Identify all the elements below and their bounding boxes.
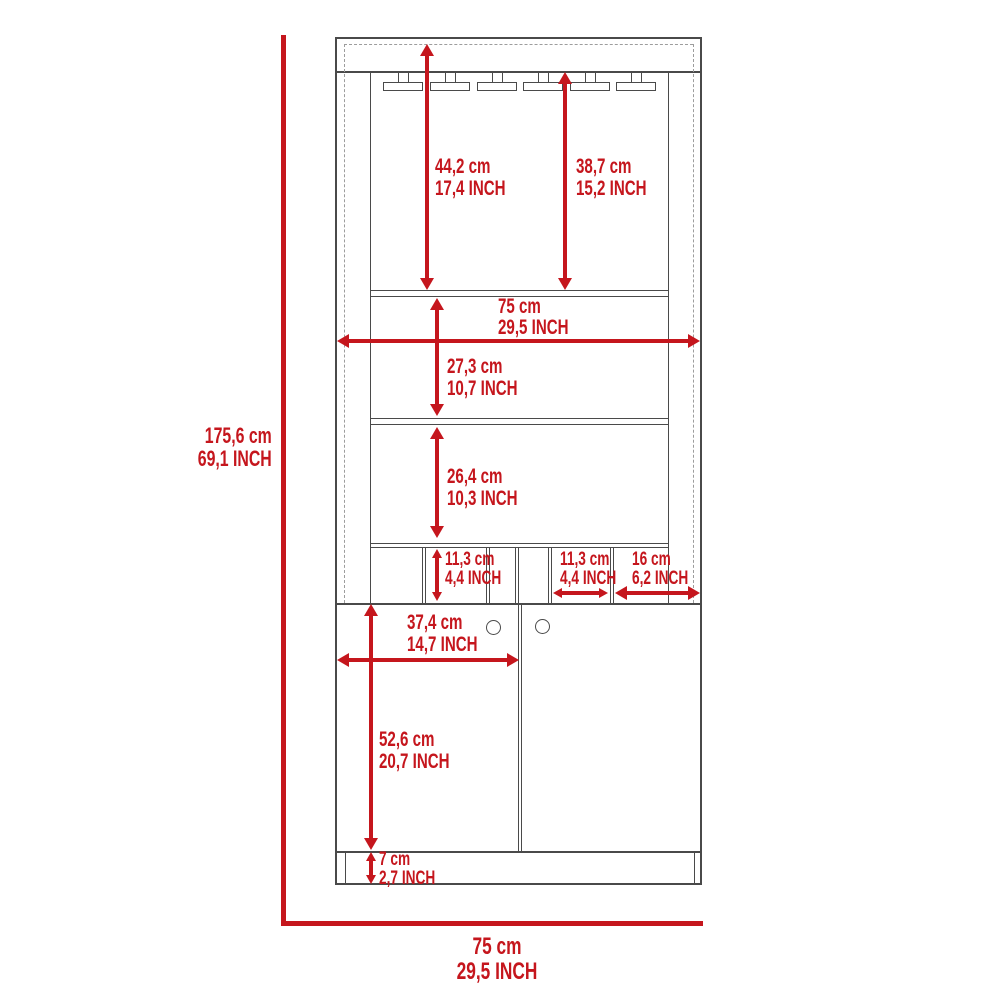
dim-label-overall-height: 175,6 cm 69,1 INCH [169, 424, 272, 470]
arrow-cubby-width [562, 591, 599, 595]
cubby-divider [425, 547, 426, 603]
shelf-line [370, 547, 668, 548]
dim-cm: 38,7 cm [576, 156, 647, 178]
rack-support [631, 71, 632, 82]
rack-support [408, 71, 409, 82]
cubby-divider [551, 547, 552, 603]
rack-support [445, 71, 446, 82]
dim-inch: 29,5 INCH [413, 959, 581, 984]
dashed-inset-right [693, 44, 694, 603]
dim-inch: 69,1 INCH [198, 447, 272, 470]
arrow-top-section-with-panel [425, 56, 429, 278]
arrow-cubby-height [435, 558, 439, 592]
arrow-middle-section [435, 310, 439, 404]
dashed-inset-left [344, 44, 345, 603]
cubby-divider [422, 547, 423, 603]
dim-cm: 7 cm [379, 850, 435, 869]
dim-label-cubby-height: 11,3 cm 4,4 INCH [445, 550, 523, 588]
shelf-line [370, 424, 668, 425]
arrow-interior-width [349, 339, 688, 343]
stemware-rack-bar [430, 82, 470, 91]
stemware-rack-bar [570, 82, 610, 91]
dim-inch: 29,5 INCH [498, 317, 569, 338]
dim-label-interior-width: 75 cm 29,5 INCH [498, 296, 596, 338]
stemware-rack-bar [523, 82, 563, 91]
dim-cm: 11,3 cm [445, 550, 501, 569]
dim-inch: 4,4 INCH [445, 569, 501, 588]
shelf-line [370, 418, 668, 419]
rack-support [455, 71, 456, 82]
base-inset-line [345, 851, 346, 884]
dim-inch: 4,4 INCH [560, 569, 616, 588]
door-divider [518, 603, 519, 851]
dim-label-door-height: 52,6 cm 20,7 INCH [379, 729, 477, 773]
rack-support [398, 71, 399, 82]
stemware-rack-bar [477, 82, 517, 91]
dim-label-middle-section: 27,3 cm 10,7 INCH [447, 356, 545, 400]
arrow-base-height [369, 861, 373, 875]
dim-cm: 52,6 cm [379, 729, 450, 751]
dim-cm: 44,2 cm [435, 156, 506, 178]
rack-support [595, 71, 596, 82]
overall-width-line [281, 921, 703, 926]
dim-inch: 10,3 INCH [447, 488, 518, 510]
dim-inch: 2,7 INCH [379, 869, 435, 888]
rack-support [641, 71, 642, 82]
rack-support [585, 71, 586, 82]
arrow-door-height [369, 616, 373, 838]
shelf-line [370, 543, 668, 544]
shelf-line [370, 290, 668, 291]
dim-cm: 27,3 cm [447, 356, 518, 378]
dim-cm: 175,6 cm [198, 424, 272, 447]
dimension-diagram: 44,2 cm 17,4 INCH 38,7 cm 15,2 INCH 75 c… [0, 0, 1000, 1000]
rack-support [502, 71, 503, 82]
dim-cm: 16 cm [632, 550, 688, 569]
top-panel-line [335, 71, 702, 73]
dim-label-open-shelf: 26,4 cm 10,3 INCH [447, 466, 545, 510]
rack-support [548, 71, 549, 82]
dim-inch: 20,7 INCH [379, 751, 450, 773]
dim-cm: 11,3 cm [560, 550, 616, 569]
dashed-inset-top [344, 44, 693, 45]
dim-cm: 75 cm [413, 934, 581, 959]
hutch-left-wall [370, 71, 371, 603]
arrow-side-compartment-width [627, 591, 688, 595]
cubby-divider [548, 547, 549, 603]
dim-inch: 17,4 INCH [435, 178, 506, 200]
dim-cm: 26,4 cm [447, 466, 518, 488]
dim-label-top-section-clearance: 38,7 cm 15,2 INCH [576, 156, 674, 200]
hutch-right-wall [668, 71, 669, 603]
arrow-top-section-clearance [563, 84, 567, 278]
dim-label-side-compartment: 16 cm 6,2 INCH [632, 550, 710, 588]
dim-inch: 6,2 INCH [632, 569, 688, 588]
stemware-rack-bar [383, 82, 423, 91]
dim-inch: 15,2 INCH [576, 178, 647, 200]
overall-height-line [281, 35, 286, 926]
dim-label-top-section-with-panel: 44,2 cm 17,4 INCH [435, 156, 533, 200]
door-divider [521, 603, 522, 851]
stemware-rack-bar [616, 82, 656, 91]
dim-inch: 14,7 INCH [407, 634, 478, 656]
arrow-open-shelf [435, 439, 439, 526]
dim-cm: 75 cm [498, 296, 569, 317]
dim-cm: 37,4 cm [407, 612, 478, 634]
base-inset-line [694, 851, 695, 884]
dim-label-door-width: 37,4 cm 14,7 INCH [407, 612, 505, 656]
dim-inch: 10,7 INCH [447, 378, 518, 400]
rack-support [538, 71, 539, 82]
dim-label-cubby-width: 11,3 cm 4,4 INCH [560, 550, 638, 588]
door-knob [535, 619, 550, 634]
dim-label-base-height: 7 cm 2,7 INCH [379, 850, 457, 888]
rack-support [492, 71, 493, 82]
dim-label-overall-width: 75 cm 29,5 INCH [380, 934, 614, 984]
